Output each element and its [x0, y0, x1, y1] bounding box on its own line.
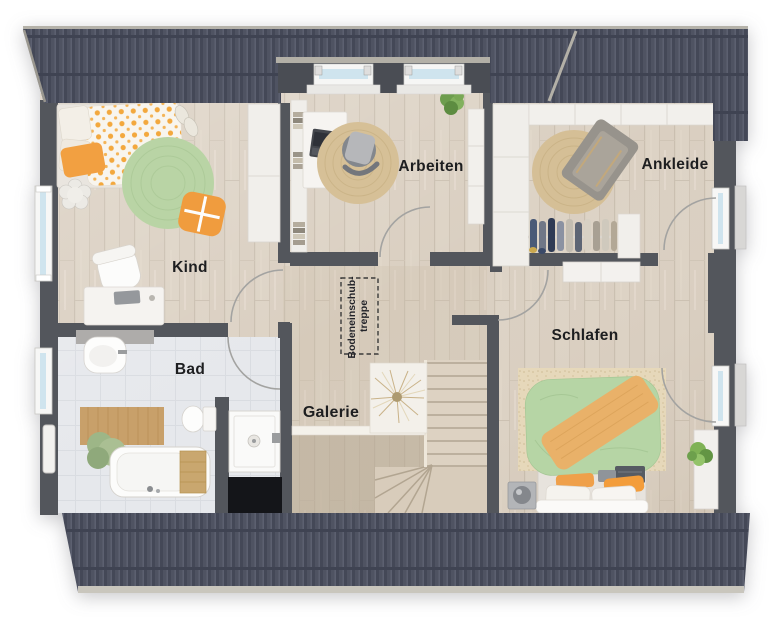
room-label-schlafen: Schlafen — [551, 327, 618, 344]
bad-basin-faucet — [118, 350, 127, 354]
wall-arbeiten-galerie-right — [430, 252, 492, 266]
wall-bad-top-stub — [280, 323, 292, 337]
wall-arbeiten-ankleide — [483, 93, 493, 266]
kind-desk-item — [149, 295, 155, 301]
wall-arbeiten-galerie-left — [290, 252, 378, 266]
dormer-window-sill-2 — [397, 85, 471, 94]
ankleide-rail-shelf — [618, 214, 640, 258]
attic-hatch-label-line1: Bodeneinschub- — [346, 276, 358, 359]
ankleide-hanging-clothes — [529, 218, 617, 254]
dormer-window-1 — [314, 64, 373, 85]
dormer-window-sill-1 — [307, 85, 380, 94]
window-bad-left — [35, 348, 52, 414]
schlafen-footboard — [536, 500, 648, 513]
room-label-bad: Bad — [175, 361, 205, 378]
roof-bottom — [62, 513, 750, 592]
bad-shower-faucet — [272, 433, 280, 443]
room-label-kind: Kind — [172, 259, 208, 276]
kind-wardrobe — [248, 104, 280, 242]
wall-stairwell-corner — [452, 315, 487, 325]
stair-winder — [375, 467, 490, 513]
roof-bottom-gutter — [78, 586, 744, 593]
kind-desk-tablet — [114, 290, 141, 305]
schlafen-speaker-highlight — [516, 489, 522, 495]
bad-bathtub-inner — [117, 453, 189, 491]
window-schlafen-right — [712, 364, 746, 426]
roof-dormer-gutter — [276, 57, 492, 63]
floorplan-canvas: Bodeneinschub- treppe — [0, 0, 775, 619]
schlafen-dresser — [694, 430, 718, 509]
wall-galerie-schlafen — [487, 315, 499, 513]
bad-radiator — [43, 425, 55, 473]
room-label-ankleide: Ankleide — [641, 156, 708, 173]
ankleide-wardrobe-column — [493, 104, 529, 266]
bad-tub-drain — [156, 489, 160, 493]
dormer-window-2 — [404, 64, 464, 85]
bad-shower-drain-dot — [252, 439, 256, 443]
window-ankleide-right — [712, 186, 746, 249]
wall-shower — [215, 397, 229, 513]
wall-right-pier — [708, 253, 736, 333]
room-label-arbeiten: Arbeiten — [398, 158, 463, 175]
bad-toilet-tank — [203, 407, 216, 431]
bad-toilet-bowl — [182, 406, 204, 432]
kind-pillow — [58, 105, 92, 143]
schlafen-speaker-sphere — [513, 486, 531, 504]
arbeiten-cabinet — [468, 109, 484, 224]
attic-hatch-label-line2: treppe — [358, 300, 370, 332]
floorplan-svg: Bodeneinschub- treppe — [0, 0, 775, 619]
roof-top-left — [23, 29, 281, 103]
window-kind-left — [35, 186, 52, 281]
room-label-galerie: Galerie — [303, 404, 359, 421]
dormer-front — [278, 63, 490, 94]
bad-washbasin-bowl — [89, 345, 117, 367]
bad-tub-faucet — [147, 486, 153, 492]
roof-dormer — [278, 29, 490, 57]
floor-void-opening — [228, 477, 282, 513]
